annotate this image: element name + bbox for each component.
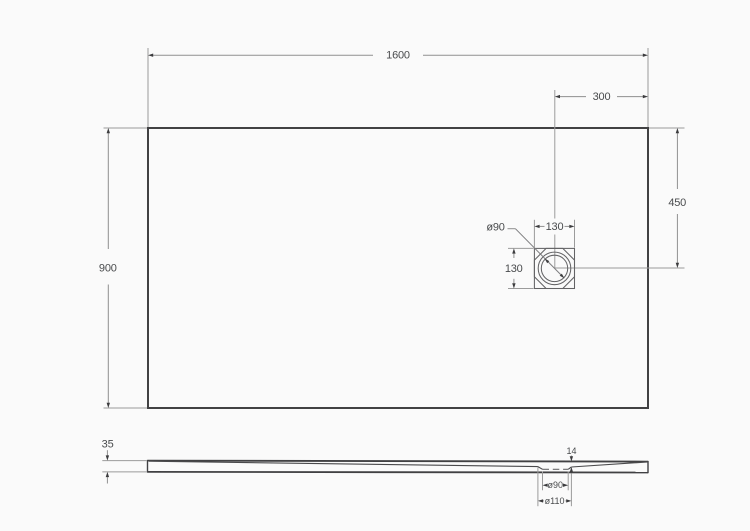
svg-text:14: 14 <box>566 446 576 456</box>
svg-text:ø90: ø90 <box>486 221 504 233</box>
svg-text:1600: 1600 <box>386 50 410 62</box>
svg-text:450: 450 <box>668 197 686 209</box>
svg-text:900: 900 <box>99 262 117 274</box>
svg-text:300: 300 <box>593 91 611 103</box>
svg-text:ø90: ø90 <box>548 480 564 490</box>
svg-text:130: 130 <box>505 263 523 275</box>
svg-text:ø110: ø110 <box>545 496 565 506</box>
svg-text:35: 35 <box>102 438 114 450</box>
svg-text:130: 130 <box>546 221 564 233</box>
